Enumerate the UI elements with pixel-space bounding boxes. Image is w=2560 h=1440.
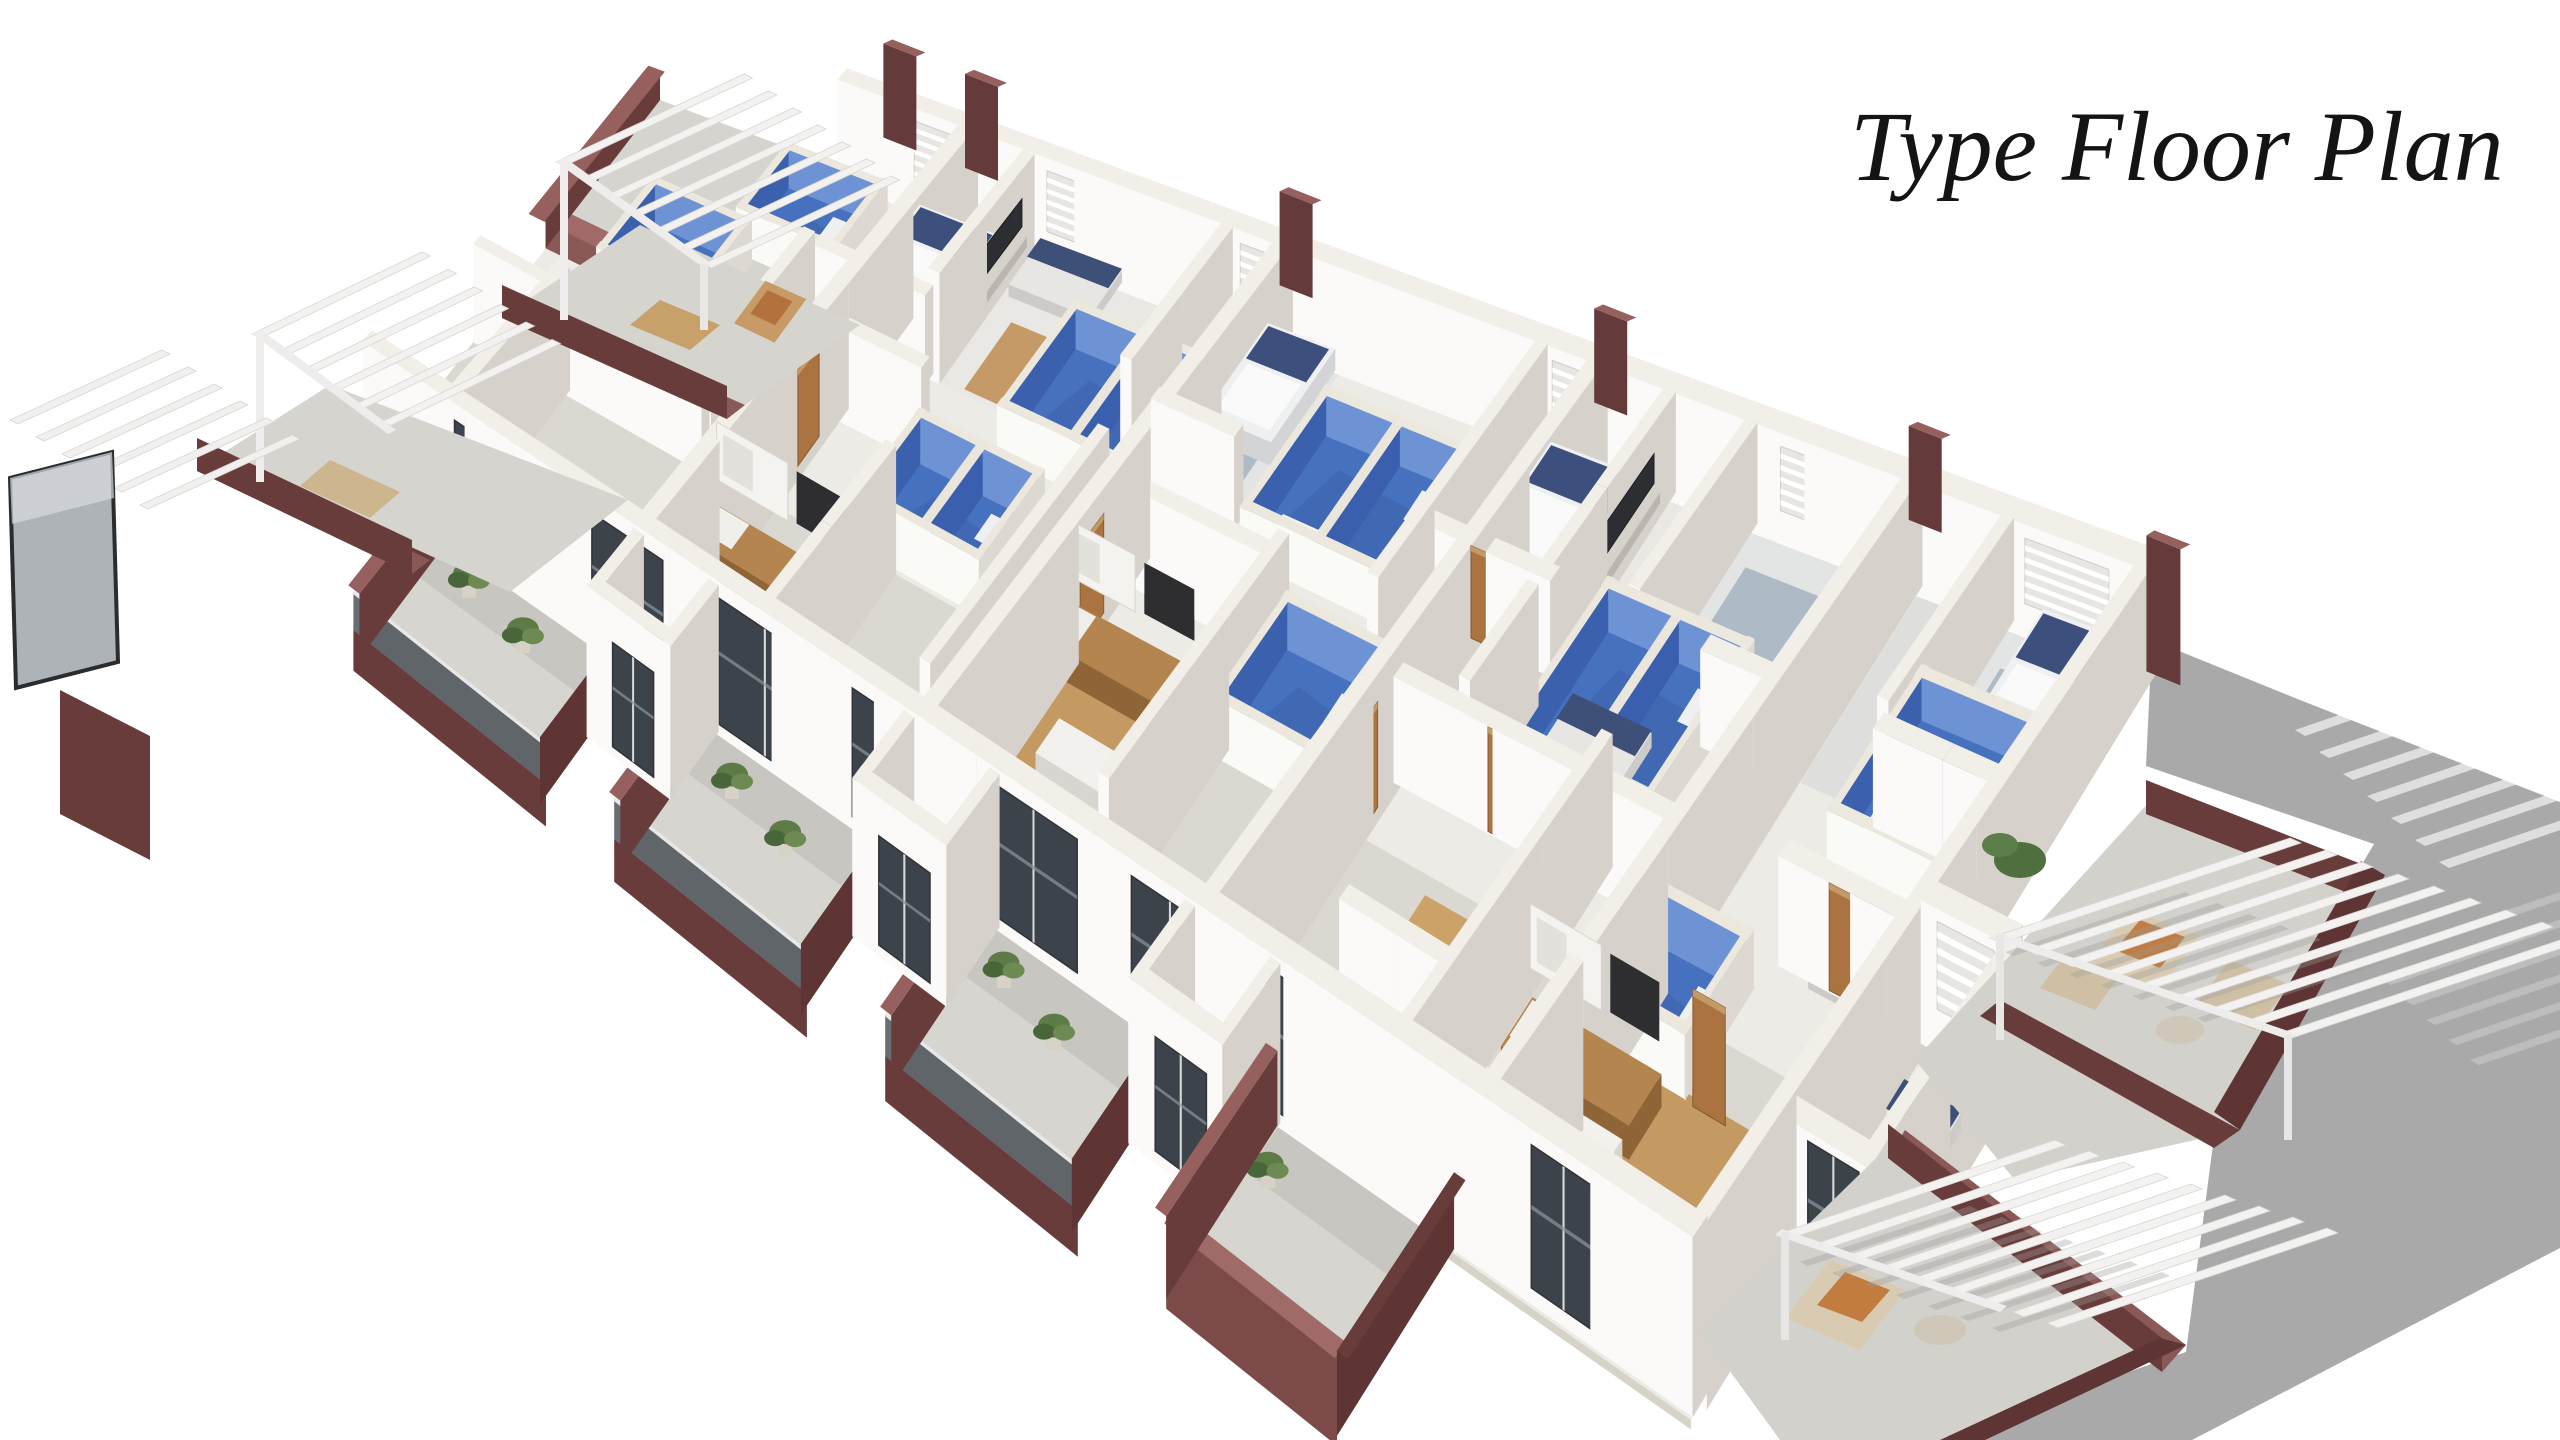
- svg-text:Type Floor Plan: Type Floor Plan: [1850, 91, 2504, 202]
